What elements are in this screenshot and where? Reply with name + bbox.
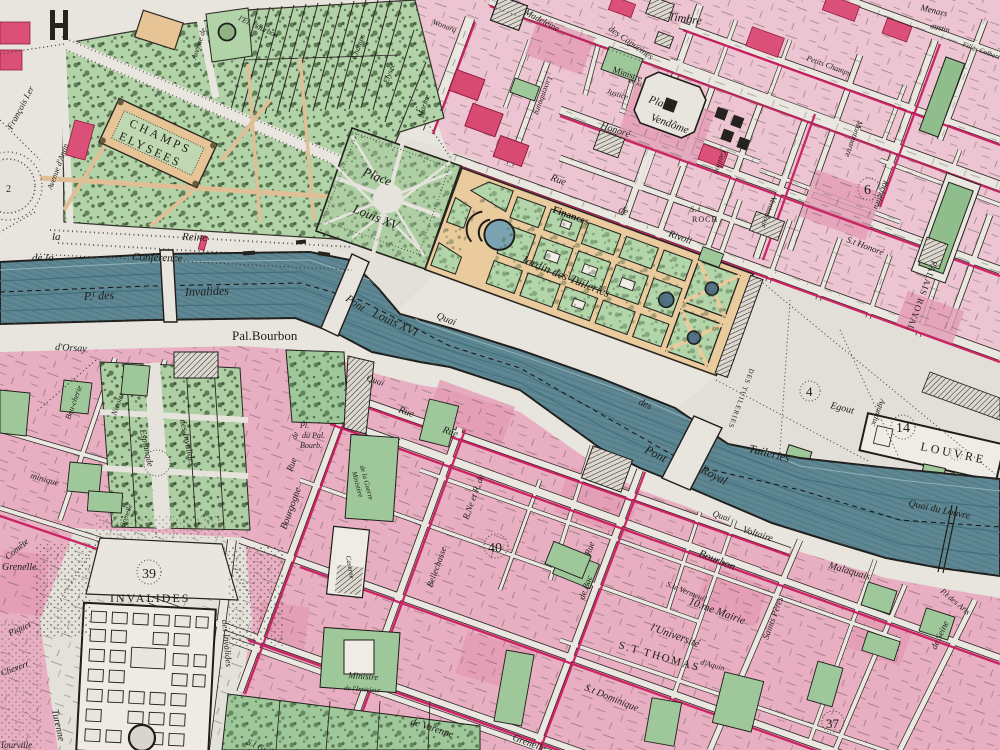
svg-text:de la: de la (32, 252, 54, 264)
svg-text:INVALIDES: INVALIDES (110, 591, 190, 605)
svg-text:Pl.: Pl. (299, 421, 309, 430)
svg-text:ROCH: ROCH (692, 215, 718, 224)
svg-text:S.t: S.t (690, 205, 701, 214)
svg-text:Pal.Bourbon: Pal.Bourbon (232, 328, 298, 343)
svg-text:Conference: Conference (132, 251, 183, 265)
svg-text:la: la (52, 231, 61, 243)
svg-text:Grenelle: Grenelle (2, 562, 37, 573)
svg-text:2: 2 (6, 184, 11, 195)
svg-text:37: 37 (826, 716, 840, 731)
svg-text:4: 4 (806, 384, 813, 399)
svg-text:6: 6 (864, 183, 871, 198)
svg-text:40: 40 (488, 541, 502, 556)
svg-text:Bourb.: Bourb. (300, 441, 322, 450)
svg-text:39: 39 (142, 567, 156, 582)
svg-text:du Pal.: du Pal. (302, 431, 325, 440)
svg-text:Invalides: Invalides (184, 283, 230, 299)
svg-text:P.t des: P.t des (83, 288, 115, 303)
svg-text:14: 14 (896, 421, 910, 436)
svg-text:d'Orsay: d'Orsay (55, 342, 88, 355)
svg-text:Tourville: Tourville (0, 740, 32, 750)
svg-text:Reine: Reine (181, 231, 208, 244)
